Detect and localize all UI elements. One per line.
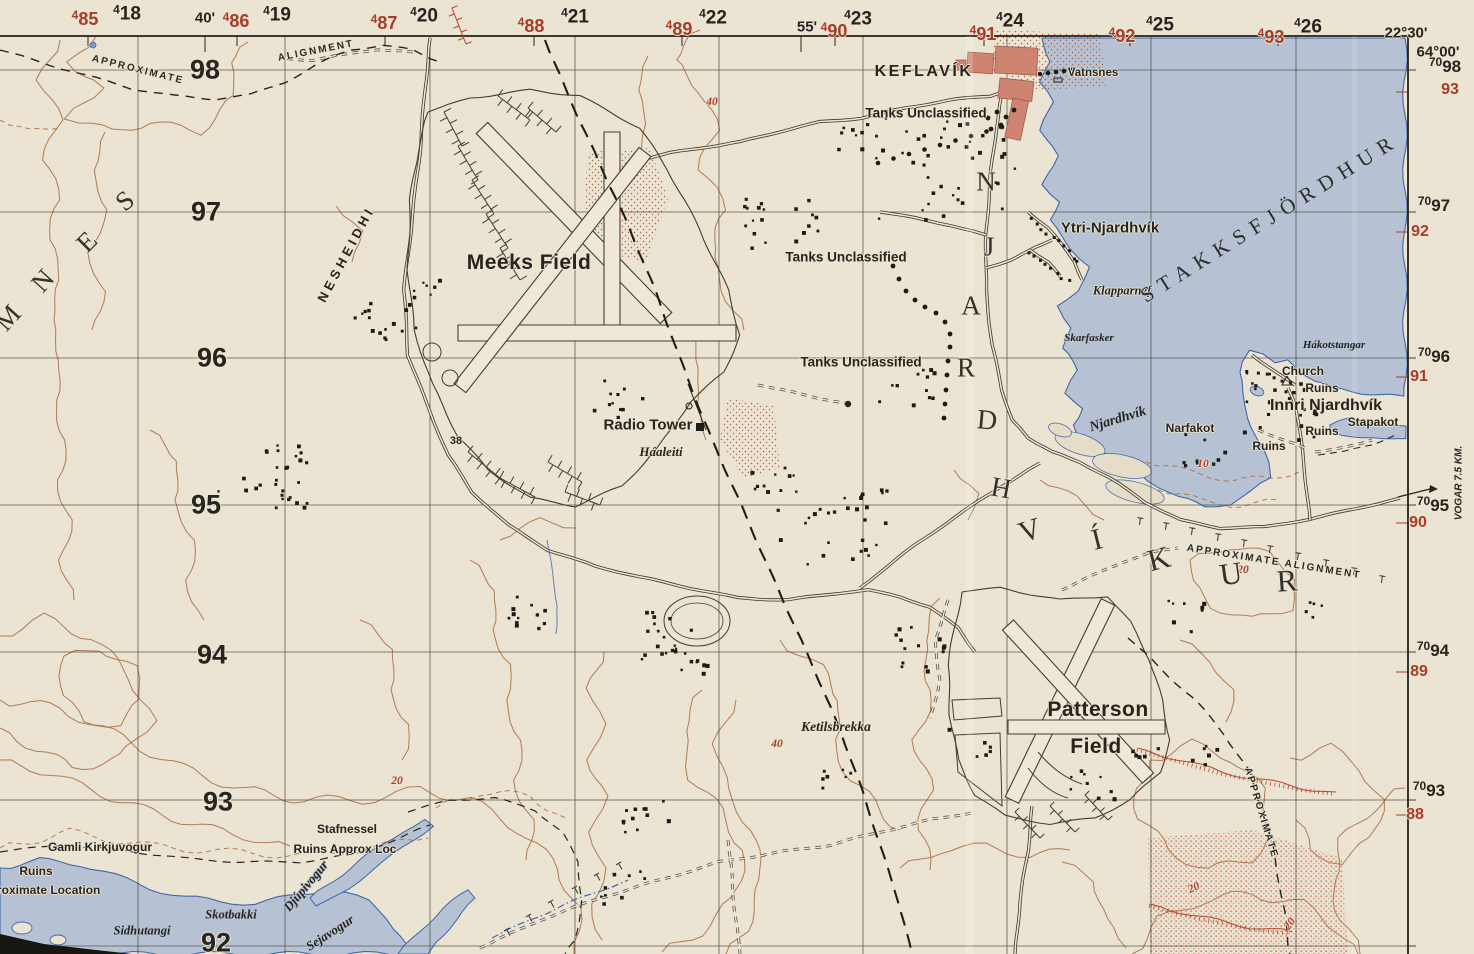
map-label: Djúpivogur: [280, 857, 332, 914]
map-label: Ruins: [1252, 439, 1285, 453]
coordinate-prefix: 4: [821, 20, 828, 34]
map-lettering: V: [1014, 511, 1045, 550]
map-label: Field: [1070, 735, 1122, 759]
coordinate-value: 21: [568, 7, 589, 28]
grid-coordinate-red: 486: [223, 10, 250, 32]
coordinate-value: 96: [1431, 347, 1450, 366]
grid-coordinate-black: 424: [996, 10, 1024, 33]
map-lettering: M: [0, 299, 28, 338]
map-label: STAKKSFJÖRDHUR: [1136, 128, 1404, 308]
map-label: Meeks Field: [467, 251, 592, 275]
map-lettering: H: [988, 471, 1013, 506]
coordinate-value: 86: [229, 11, 249, 31]
coordinate-prefix: 4: [72, 8, 79, 22]
map-lettering: U: [1217, 555, 1244, 594]
coordinate-value: 88: [524, 16, 544, 36]
map-label: Ruins Approx Loc: [294, 842, 397, 856]
map-label: 40: [706, 96, 718, 108]
coordinate-prefix: 4: [996, 10, 1003, 24]
map-label: Narfakot: [1166, 421, 1215, 435]
map-label: Ketilsbrekka: [801, 719, 871, 735]
map-lettering: R: [1275, 562, 1298, 599]
grid-coordinate-red: 488: [518, 15, 545, 37]
map-lettering: R: [957, 353, 975, 384]
map-label: Tanks Unclassified: [865, 106, 986, 121]
grid-coordinate-black: 418: [113, 3, 141, 26]
map-label: APPROXIMATE ALIGNMENT: [1186, 543, 1362, 581]
map-label: Radio Tower: [604, 417, 693, 434]
map-label: Skarfasker: [1064, 332, 1114, 344]
grid-coordinate-red: 93: [1441, 81, 1459, 99]
grid-coordinate-black: 419: [263, 4, 291, 27]
coordinate-value: 22: [706, 8, 727, 29]
grid-coordinate-red: 92: [1411, 223, 1429, 241]
coordinate-prefix: 4: [518, 15, 525, 29]
grid-coordinate-black: 421: [561, 6, 589, 29]
map-label: Sejavogur: [303, 912, 357, 954]
map-label: roximate Location: [0, 883, 100, 897]
coordinate-value: 87: [377, 13, 397, 33]
map-label: Skotbakki: [205, 908, 256, 923]
coordinate-value: 90: [827, 21, 847, 41]
coordinate-prefix: 4: [1294, 16, 1301, 30]
grid-coordinate-black: 423: [844, 8, 872, 31]
coordinate-value: 25: [1153, 15, 1174, 36]
graticule-minute-label: 22°30': [1385, 25, 1428, 42]
coordinate-value: 97: [1431, 196, 1450, 215]
coordinate-prefix: 4: [699, 7, 706, 21]
coordinate-prefix: 4: [666, 18, 673, 32]
coordinate-value: 95: [1430, 496, 1449, 515]
map-lettering: E: [70, 225, 104, 259]
coordinate-value: 23: [851, 9, 872, 30]
grid-number: 97: [191, 197, 221, 228]
coordinate-prefix: 4: [223, 10, 230, 24]
grid-coordinate-red: 88: [1406, 806, 1424, 824]
coordinate-prefix: 70: [1413, 779, 1426, 793]
coordinate-prefix: 4: [1109, 25, 1116, 39]
map-label: 20: [1282, 916, 1298, 932]
map-lettering: N: [25, 263, 61, 298]
graticule-minute-label: 55': [797, 19, 817, 36]
grid-coordinate-black: 7094: [1417, 639, 1449, 661]
grid-coordinate-black: 426: [1294, 16, 1322, 39]
coordinate-value: 24: [1003, 11, 1024, 32]
coordinate-prefix: 4: [371, 12, 378, 26]
map-label: Háaleiti: [639, 444, 682, 460]
coordinate-value: 94: [1430, 641, 1449, 660]
map-labels-layer: APPROXIMATEALIGNMENTKEFLAVÍKVatnsnesTank…: [0, 0, 1474, 954]
map-label: Njardhvík: [1088, 404, 1148, 436]
coordinate-value: 85: [78, 9, 98, 29]
grid-number: 96: [197, 343, 227, 374]
coordinate-value: 91: [976, 24, 996, 44]
coordinate-prefix: 4: [263, 4, 270, 18]
coordinate-prefix: 4: [561, 6, 568, 20]
grid-coordinate-red: 491: [970, 23, 997, 45]
map-canvas: APPROXIMATEALIGNMENTKEFLAVÍKVatnsnesTank…: [0, 0, 1474, 954]
coordinate-value: 20: [417, 6, 438, 27]
map-label: KEFLAVÍK: [875, 63, 974, 81]
map-label: APPROXIMATE: [91, 53, 185, 87]
map-label: Innri Njardhvík: [1270, 397, 1382, 415]
coordinate-prefix: 70: [1417, 639, 1430, 653]
map-label: 20: [1186, 880, 1201, 896]
coordinate-value: 18: [120, 4, 141, 25]
coordinate-value: 19: [270, 5, 291, 26]
coordinate-prefix: 4: [113, 3, 120, 17]
coordinate-prefix: 70: [1418, 194, 1431, 208]
graticule-minute-label: 40': [195, 10, 215, 27]
map-label: 38: [450, 435, 462, 447]
coordinate-value: 89: [672, 19, 692, 39]
grid-coordinate-black: 7097: [1418, 194, 1450, 216]
map-label: APPROXIMATE: [1242, 766, 1280, 860]
coordinate-prefix: 4: [970, 23, 977, 37]
grid-coordinate-red: 492: [1109, 25, 1136, 47]
coordinate-value: 93: [1264, 27, 1284, 47]
map-label: ALIGNMENT: [277, 38, 355, 64]
map-label: Vatnsnes: [1068, 67, 1119, 79]
map-label: Ytri-Njardhvík: [1061, 220, 1159, 237]
map-label: 20: [391, 775, 403, 787]
grid-number: 94: [197, 640, 227, 671]
map-lettering: D: [976, 404, 999, 438]
coordinate-value: 92: [1115, 26, 1135, 46]
map-label: Ruins: [19, 864, 52, 878]
grid-coordinate-red: 89: [1410, 663, 1428, 681]
grid-number: 98: [190, 55, 220, 86]
map-label: Gamli Kirkjuvogur: [48, 840, 152, 854]
grid-coordinate-red: 485: [72, 8, 99, 30]
map-lettering: A: [961, 291, 981, 322]
map-lettering: K: [1144, 539, 1174, 579]
grid-coordinate-black: 425: [1146, 14, 1174, 37]
map-label: Tanks Unclassified: [800, 355, 921, 370]
map-label: Ruins: [1305, 424, 1338, 438]
map-lettering: S: [109, 184, 140, 217]
graticule-latitude-label: 64°00': [1417, 44, 1460, 61]
grid-coordinate-red: 493: [1258, 26, 1285, 48]
map-label: 10: [1197, 458, 1209, 470]
map-label: Stapakot: [1348, 415, 1399, 429]
grid-coordinate-black: 7093: [1413, 779, 1445, 801]
grid-coordinate-red: 91: [1410, 368, 1428, 386]
coordinate-prefix: 4: [1146, 14, 1153, 28]
grid-number: 92: [201, 928, 231, 954]
map-label: Patterson: [1047, 698, 1148, 722]
coordinate-prefix: 4: [1258, 26, 1265, 40]
adjoining-road-note: VOGAR 7.5 KM.: [1454, 446, 1465, 520]
coordinate-value: 26: [1301, 17, 1322, 38]
grid-coordinate-red: 490: [821, 20, 848, 42]
grid-coordinate-black: 7096: [1418, 345, 1450, 367]
grid-number: 95: [191, 490, 221, 521]
map-lettering: J: [984, 232, 995, 263]
coordinate-prefix: 70: [1417, 494, 1430, 508]
grid-coordinate-black: 7095: [1417, 494, 1449, 516]
map-lettering: N: [976, 167, 996, 198]
map-label: Hákotstangar: [1303, 339, 1365, 351]
coordinate-prefix: 4: [410, 5, 417, 19]
map-label: Church: [1282, 364, 1324, 378]
coordinate-prefix: 70: [1418, 345, 1431, 359]
map-label: Sidhutangi: [114, 924, 171, 939]
map-label: NESHEIDHI: [314, 203, 377, 304]
coordinate-value: 93: [1426, 781, 1445, 800]
grid-coordinate-red: 90: [1409, 514, 1427, 532]
grid-coordinate-red: 489: [666, 18, 693, 40]
grid-coordinate-red: 487: [371, 12, 398, 34]
grid-number: 93: [203, 787, 233, 818]
map-label: Ruins: [1305, 381, 1338, 395]
map-label: Stafnessel: [317, 822, 377, 836]
grid-coordinate-black: 422: [699, 7, 727, 30]
map-label: Tanks Unclassified: [785, 250, 906, 265]
map-label: 40: [771, 738, 783, 750]
map-lettering: Í: [1088, 522, 1106, 557]
grid-coordinate-black: 420: [410, 5, 438, 28]
